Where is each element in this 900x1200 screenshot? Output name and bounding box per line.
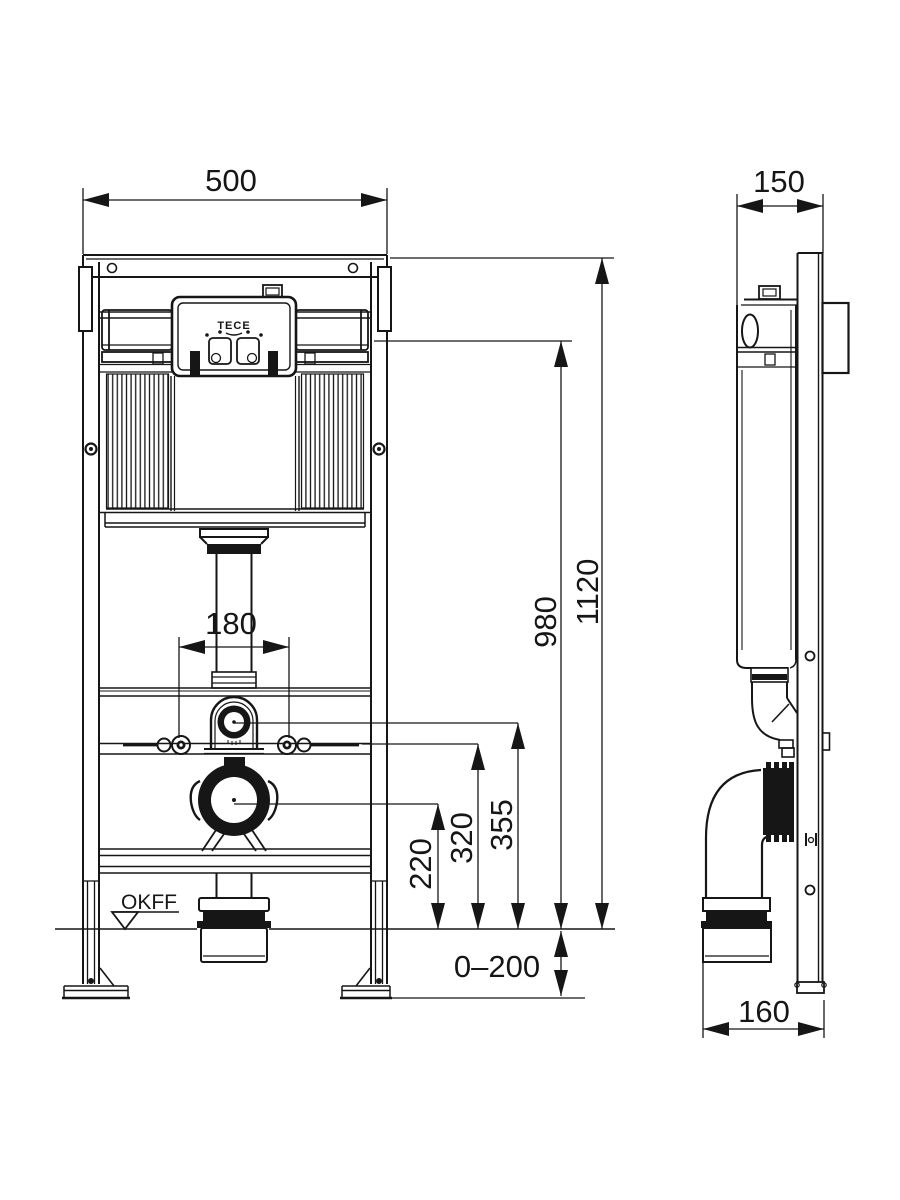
- technical-drawing-installation-frame: 500 150 180 1120 980 355 320 220 0–200 1…: [0, 0, 900, 1200]
- cistern-insulation: [107, 374, 364, 511]
- side-wall-bracket: [823, 303, 849, 373]
- dim-total-height: 1120: [570, 559, 605, 626]
- fixing-point-right: [298, 739, 311, 752]
- frame-feet: [62, 968, 392, 998]
- drawing-svg: 500 150 180 1120 980 355 320 220 0–200 1…: [0, 0, 900, 1200]
- side-view: [701, 253, 849, 993]
- dim-water-height: 355: [484, 799, 519, 851]
- drain-seal-ring: [191, 764, 278, 851]
- left-wall-plate: [79, 267, 92, 331]
- side-cistern: [737, 286, 797, 668]
- fixing-point-left: [158, 739, 171, 752]
- brand-logo: TECE: [217, 320, 250, 332]
- drain-outlet-front: [197, 873, 271, 962]
- dim-frame-width: 500: [205, 163, 257, 198]
- lower-rails: [99, 849, 371, 873]
- middle-rail: [99, 688, 371, 696]
- top-rail: [83, 255, 387, 277]
- side-flush-elbow: [751, 668, 797, 757]
- right-wall-plate: [378, 267, 391, 331]
- dim-foot-adjustment: 0–200: [454, 949, 540, 984]
- side-anchor-block: [763, 762, 794, 842]
- dim-drain-offset: 160: [738, 994, 790, 1029]
- dim-bolt-spacing: 180: [205, 606, 257, 641]
- dim-depth: 150: [753, 164, 805, 199]
- dim-fixing-height: 320: [444, 812, 479, 864]
- flush-bend-housing: [204, 697, 264, 754]
- cistern-bottom: [99, 509, 371, 527]
- dim-panel-height: 980: [528, 596, 563, 648]
- floor-level-label: OKFF: [121, 891, 177, 914]
- side-drain-bend: [706, 770, 770, 898]
- floor-level: [55, 912, 615, 929]
- dim-drain-height: 220: [403, 838, 438, 890]
- drain-outlet-side: [701, 898, 772, 962]
